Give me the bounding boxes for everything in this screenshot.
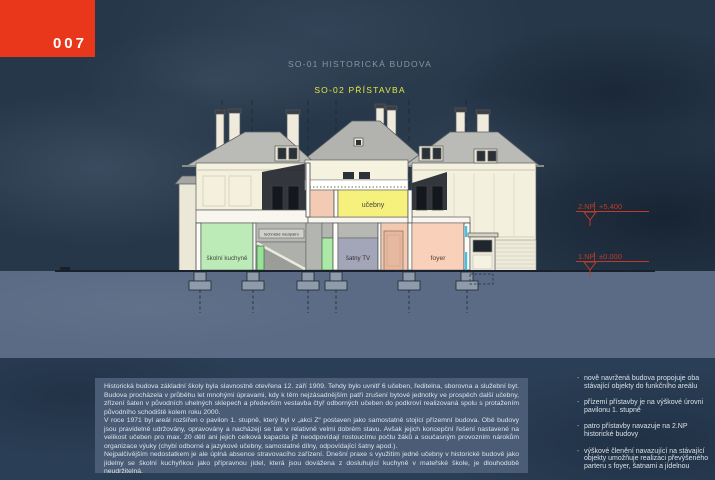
label-satny: šatny TV <box>346 255 371 262</box>
level-value: ±0.000 <box>599 252 622 261</box>
window <box>288 186 299 210</box>
bullet-item: - výškové členění navazující na stávajíc… <box>577 448 709 471</box>
entrance-annex <box>468 233 498 271</box>
window <box>432 186 443 210</box>
glazing-strip <box>465 252 467 270</box>
level-marker-1np: 1.NP ±0.000 <box>576 252 649 276</box>
bullet-item: - nově navržená budova propojuje oba stá… <box>577 375 709 390</box>
facade-left-wing <box>196 163 308 210</box>
bullet-text: výškové členění navazující na stávající … <box>584 448 709 471</box>
level-marker-2np: 2.NP +5.400 <box>576 202 649 226</box>
room-satny <box>338 238 378 270</box>
door-green-tall <box>322 238 333 270</box>
left-annex <box>175 176 199 271</box>
bullet-text: nově navržená budova propojuje oba stáva… <box>584 375 709 390</box>
label-mezipatro: technické mezipatro <box>264 232 299 237</box>
room-kuchyne <box>201 223 253 270</box>
description-paragraph-1: Historická budova základní školy byla sl… <box>104 383 519 417</box>
description-paragraph-3: Nejpalčivějším nedostatkem je ale úplná … <box>104 451 519 477</box>
glazing-strip <box>465 226 467 237</box>
label-kuchyne: školní kuchyně <box>207 255 248 262</box>
bullet-dash-icon: - <box>577 375 584 390</box>
bullet-list: - nově navržená budova propojuje oba stá… <box>577 375 709 479</box>
presentation-board: 007 SO-01 HISTORICKÁ BUDOVA SO-02 PŘÍSTA… <box>0 0 715 480</box>
siding-lower-right <box>495 240 536 271</box>
bullet-item: - patro přístavby navazuje na 2.NP histo… <box>577 423 709 438</box>
room-foyer <box>412 223 464 270</box>
label-ucebny: učebny <box>362 202 385 209</box>
ground-foundations <box>55 267 655 313</box>
level-label: 2.NP <box>578 202 595 211</box>
bullet-dash-icon: - <box>577 399 584 414</box>
bullet-item: - přízemí přístavby je na výškové úrovni… <box>577 399 709 414</box>
label-foyer: foyer <box>430 255 446 262</box>
door-green <box>257 246 264 270</box>
window <box>272 186 283 210</box>
level-value: +5.400 <box>599 202 622 211</box>
window <box>416 186 427 210</box>
room-stairhall-upper <box>310 190 334 217</box>
description-block: Historická budova základní školy byla sl… <box>95 378 528 473</box>
description-paragraph-2: V roce 1971 byl areál rozšířen o pavilon… <box>104 417 519 451</box>
level-label: 1.NP <box>578 252 595 261</box>
bullet-text: patro přístavby navazuje na 2.NP histori… <box>584 423 709 438</box>
bullet-text: přízemí přístavby je na výškové úrovni p… <box>584 399 709 414</box>
bullet-dash-icon: - <box>577 448 584 471</box>
building: učebny školní kuchyně technické mezipatr… <box>175 104 544 271</box>
bullet-dash-icon: - <box>577 423 584 438</box>
level-markers: 2.NP +5.400 1.NP ±0.000 <box>576 202 649 276</box>
central-block <box>305 160 408 190</box>
